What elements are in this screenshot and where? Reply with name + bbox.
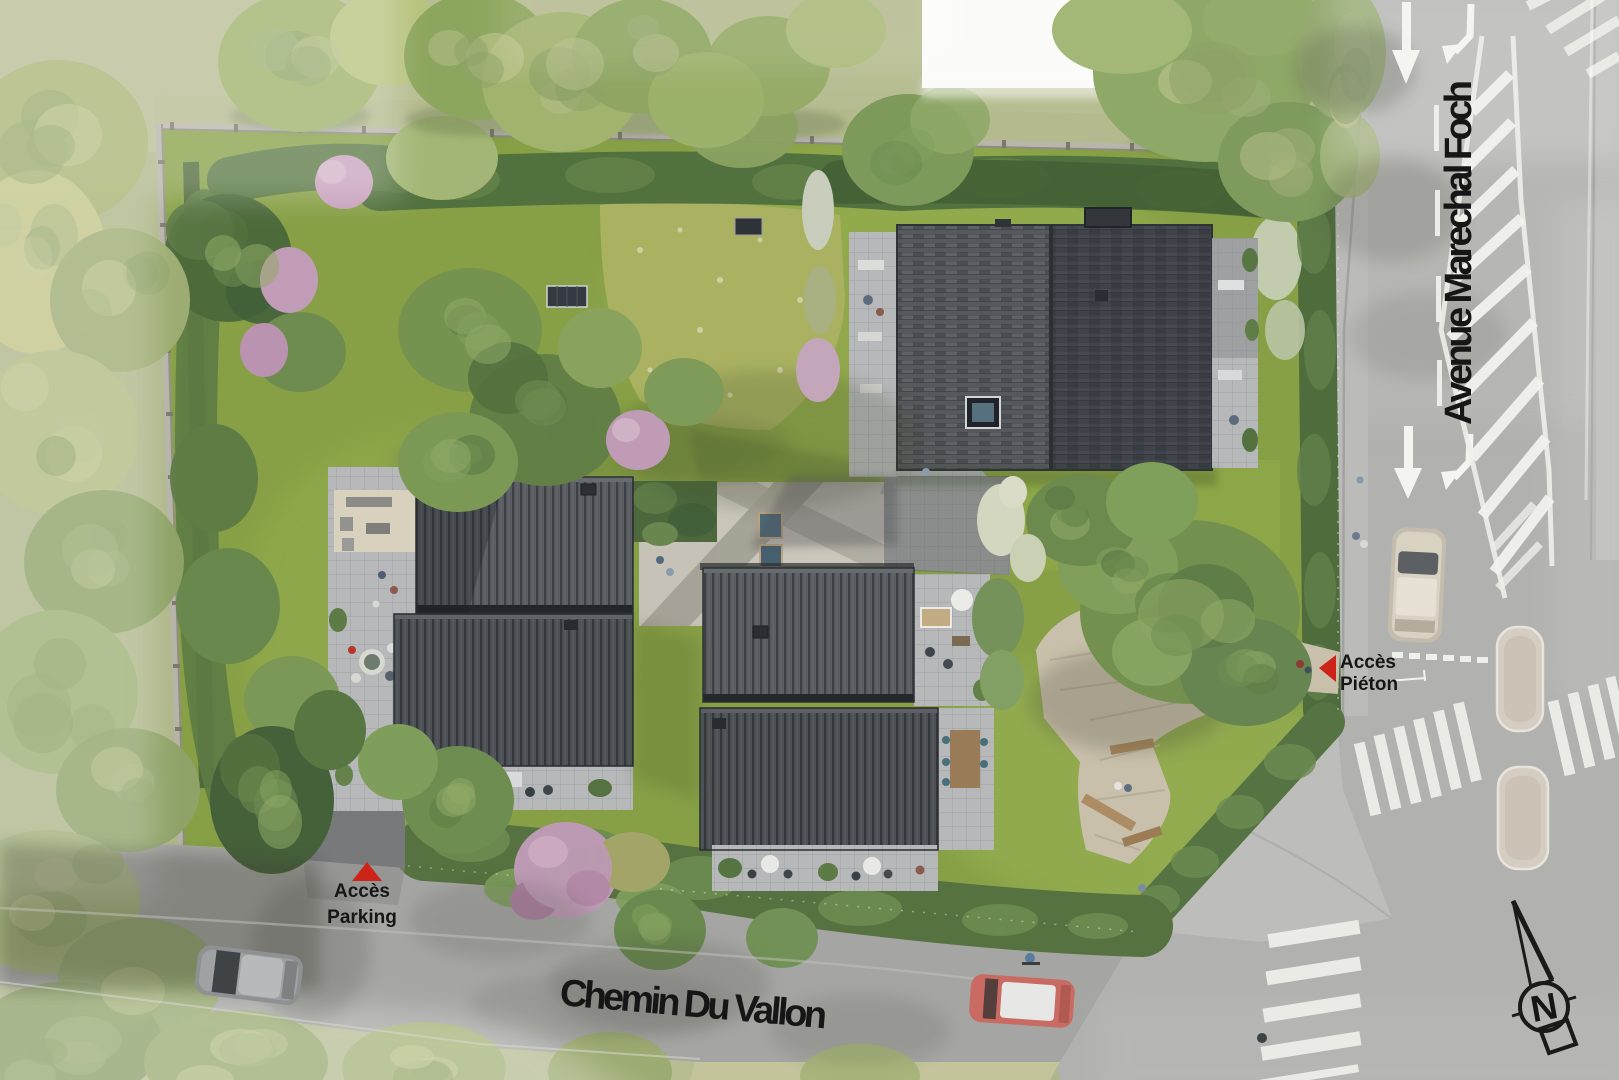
- svg-text:Parking: Parking: [327, 907, 397, 928]
- svg-text:Piéton: Piéton: [1340, 674, 1398, 695]
- svg-text:Avenue Marechal Foch: Avenue Marechal Foch: [1438, 80, 1480, 425]
- svg-text:Accès: Accès: [1340, 652, 1396, 673]
- svg-text:Accès: Accès: [334, 881, 390, 902]
